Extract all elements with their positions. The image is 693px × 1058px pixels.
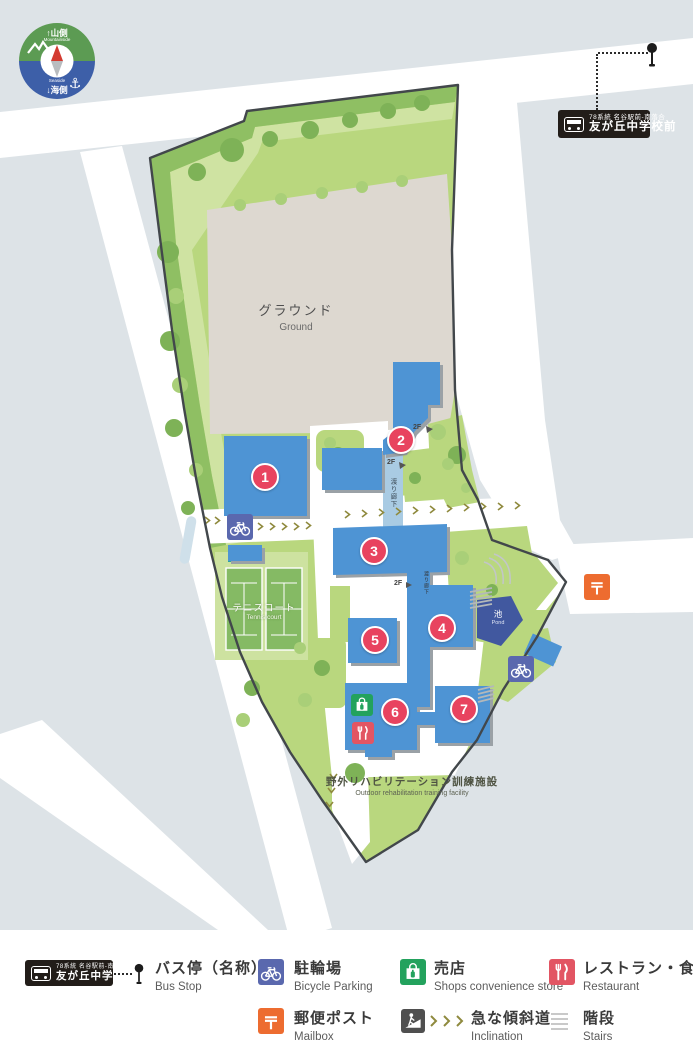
bicycle-parking-icon-2 [508, 656, 534, 682]
bus-route-dotted-line-h [598, 52, 648, 54]
bus-icon [31, 966, 51, 981]
building-4-badge: 4 [428, 614, 456, 642]
mailbox-icon-map: 〒 [584, 574, 610, 600]
legend-stairs-en: Stairs [583, 1031, 612, 1043]
compass-mountain-sub: Mountainside [18, 37, 96, 42]
bus-route-dotted-line-v [596, 54, 598, 110]
legend-shop-icon [400, 959, 426, 985]
bicycle-parking-icon-1 [227, 514, 253, 540]
tennis-label: テニスコート Tennis court [214, 600, 314, 621]
bus-stop-name: 友が丘中学校前 [589, 121, 677, 134]
building-3-badge: 3 [360, 537, 388, 565]
ground-label-ja: グラウンド [226, 300, 366, 319]
legend-mailbox-icon: 〒 [258, 1008, 284, 1034]
building-small [228, 545, 262, 561]
floor-label-2: 2F [387, 459, 395, 466]
legend-shop-ja: 売店 [434, 957, 466, 978]
legend-incline-ja: 急な傾斜道 [471, 1007, 551, 1028]
legend-stairs-icon [551, 1010, 568, 1033]
pond-label-en: Pond [477, 620, 519, 626]
legend-restaurant-ja: レストラン・食堂 [583, 957, 693, 978]
legend-restaurant-en: Restaurant [583, 981, 639, 993]
legend-bus-ja: バス停（名称） [155, 957, 267, 978]
outdoor-facility-ja: 野外リハビリテーション訓練施設 [312, 774, 512, 789]
outdoor-facility-label: 野外リハビリテーション訓練施設 Outdoor rehabilitation t… [312, 774, 512, 797]
legend-incline-en: Inclination [471, 1031, 523, 1043]
walkway-label-1: 渡り廊下 [387, 478, 397, 538]
building-5-badge: 5 [361, 626, 389, 654]
building-6-7-connector [415, 712, 437, 725]
legend-incline-icon [401, 1009, 425, 1033]
bus-route: 78系統 名谷駅前-南落合 [589, 114, 677, 121]
legend-incline-chevrons [429, 1014, 467, 1028]
compass: ⚓ ↑山側 Mountainside Seaside ↓海側 [18, 22, 96, 100]
building-annex [322, 448, 382, 490]
walkway-label-2: 渡り廊下 [423, 571, 430, 601]
legend-mailbox-ja: 郵便ポスト [294, 1007, 374, 1028]
bus-icon [564, 117, 584, 132]
legend-bus-en: Bus Stop [155, 981, 202, 993]
campus-map-page: ⚓ ↑山側 Mountainside Seaside ↓海側 78系統 名谷駅前… [0, 0, 693, 1058]
legend-mailbox-en: Mailbox [294, 1031, 334, 1043]
compass-sea-sub: Seaside [18, 78, 96, 83]
building-7-badge: 7 [450, 695, 478, 723]
building-6-badge: 6 [381, 698, 409, 726]
tennis-label-en: Tennis court [214, 614, 314, 621]
tennis-label-ja: テニスコート [214, 600, 314, 614]
outdoor-facility-en: Outdoor rehabilitation training facility [312, 790, 512, 797]
bus-stop-sign: 78系統 名谷駅前-南落合 友が丘中学校前 [558, 110, 650, 138]
campus-map: ⚓ ↑山側 Mountainside Seaside ↓海側 78系統 名谷駅前… [0, 0, 693, 930]
shop-icon-map [351, 694, 373, 716]
legend-stairs-ja: 階段 [583, 1007, 615, 1028]
floor-label-1: 2F [413, 424, 421, 431]
legend-bicycle-en: Bicycle Parking [294, 981, 373, 993]
building-1-badge: 1 [251, 463, 279, 491]
legend: 78系統 名谷駅前-南落合 友が丘中学校前 バス停（名称） Bus Stop [0, 930, 693, 1058]
legend-dotted-line [114, 973, 132, 975]
building-2-badge: 2 [387, 426, 415, 454]
ground-label: グラウンド Ground [226, 300, 366, 333]
floor-label-3: 2F [394, 580, 402, 587]
legend-shop-en: Shops convenience store [434, 981, 563, 993]
restaurant-icon-map [352, 722, 374, 744]
legend-bus-pole-icon [132, 963, 146, 987]
legend-bus-sign: 78系統 名谷駅前-南落合 友が丘中学校前 [25, 960, 113, 986]
ground-label-en: Ground [226, 322, 366, 333]
pond-label: 池 Pond [477, 608, 519, 626]
legend-bicycle-icon [258, 959, 284, 985]
legend-restaurant-icon [549, 959, 575, 985]
legend-bicycle-ja: 駐輪場 [294, 957, 342, 978]
bus-stop-pole-icon [644, 42, 660, 70]
pond-label-ja: 池 [477, 608, 519, 620]
compass-sea-label: ↓海側 [18, 84, 96, 96]
